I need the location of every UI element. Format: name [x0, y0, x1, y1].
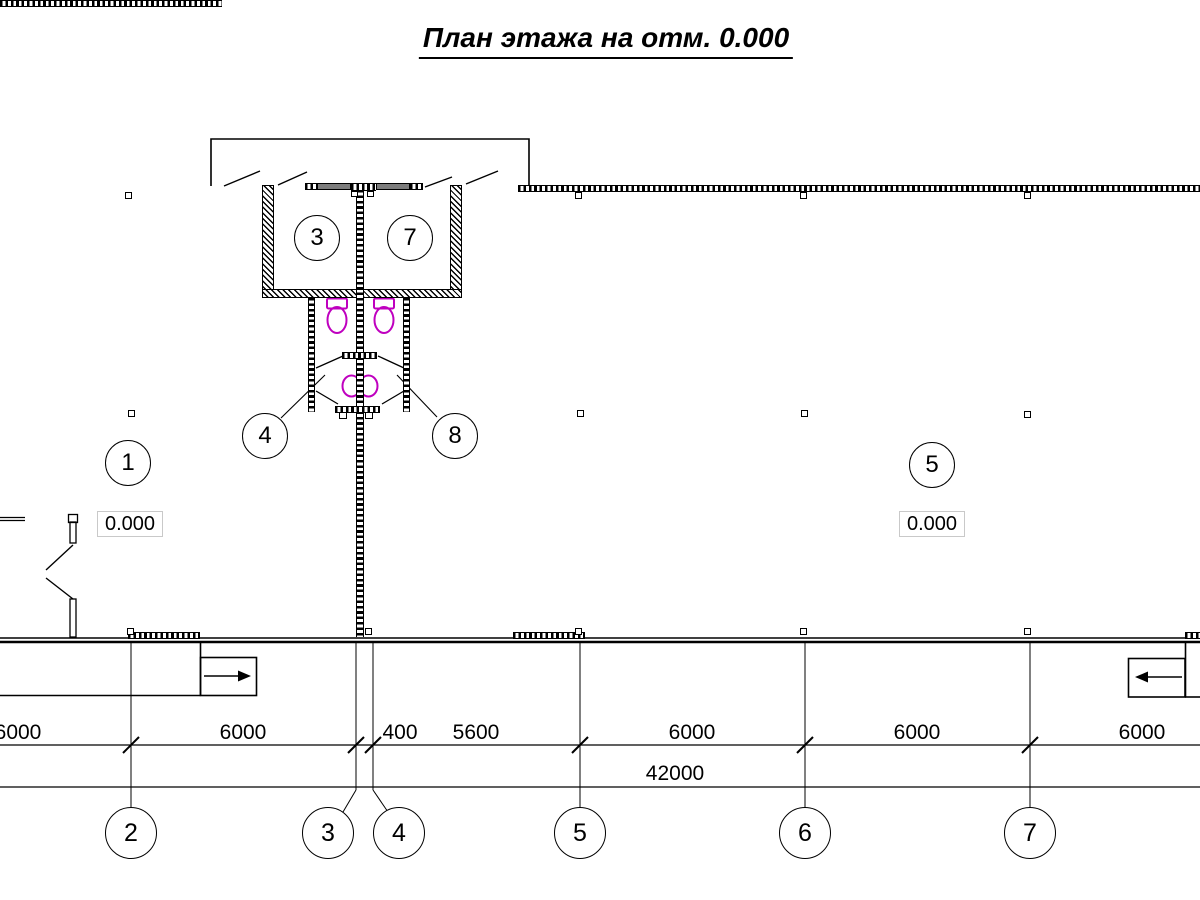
dim-text-total: 42000 — [646, 762, 704, 786]
wc-top-wall-cap — [305, 183, 317, 190]
column-tab — [125, 192, 132, 199]
dim-text-6000-d: 6000 — [894, 721, 941, 745]
column-tab — [365, 628, 372, 635]
column-tab — [800, 192, 807, 199]
column-marker — [577, 410, 584, 417]
door-leaf-line — [46, 578, 73, 599]
room-tag-4: 4 — [242, 413, 288, 459]
wc-top-wall-cap — [410, 183, 423, 190]
wc-top-partition — [376, 183, 410, 190]
top-wall-right-segment — [518, 185, 1200, 192]
door-leaf-line — [278, 172, 307, 185]
wc-left-wall — [262, 185, 274, 298]
dimension-lines — [0, 737, 1200, 787]
toilet-icon — [374, 295, 394, 334]
central-partition-wall — [356, 190, 364, 637]
column-tab — [365, 412, 373, 419]
door-leaf-line — [382, 391, 404, 404]
dim-text-6000-a: 6000 — [0, 721, 41, 745]
dim-text-6000-c: 6000 — [669, 721, 716, 745]
top-wall-left-segment — [0, 0, 222, 7]
column-tab — [1024, 628, 1031, 635]
room-tag-1: 1 — [105, 440, 151, 486]
dim-text-6000-e: 6000 — [1119, 721, 1166, 745]
leader-room-4 — [281, 375, 325, 418]
plan-linework — [0, 0, 1200, 900]
arrow-head-icon — [238, 671, 251, 682]
column-marker — [1024, 411, 1031, 418]
door-leaf-line — [224, 171, 260, 186]
door-leaf-line — [378, 356, 404, 368]
left-wall-segment — [70, 599, 76, 637]
axis-bubble-6: 6 — [779, 807, 831, 859]
room-tag-3: 3 — [294, 215, 340, 261]
dim-text-400: 400 — [382, 721, 417, 745]
lobby-partition-stub — [342, 352, 377, 359]
toilet-icon — [327, 295, 347, 334]
building-outline — [0, 139, 1200, 697]
arrow-head-icon — [1135, 672, 1148, 683]
door-leaf-line — [425, 177, 452, 187]
column-marker — [801, 410, 808, 417]
door-leaf-line — [316, 356, 343, 368]
bottom-wall-insulated-segment — [128, 632, 200, 639]
axis-bubble-7: 7 — [1004, 807, 1056, 859]
bottom-wall-insulated-segment — [1185, 632, 1200, 639]
elevation-label-left: 0.000 — [97, 511, 163, 537]
column-tab — [339, 412, 347, 419]
dim-text-5600: 5600 — [453, 721, 500, 745]
room-tag-5: 5 — [909, 442, 955, 488]
dim-text-6000-b: 6000 — [220, 721, 267, 745]
door-leaf-line — [46, 545, 73, 570]
axis-bubble-2: 2 — [105, 807, 157, 859]
axis-bubble-3: 3 — [302, 807, 354, 859]
wall-junction-square — [69, 515, 78, 523]
column-tab — [1024, 192, 1031, 199]
vestibule-outline — [211, 139, 529, 186]
column-tab — [367, 191, 374, 197]
room-tag-8: 8 — [432, 413, 478, 459]
left-wall-segment — [70, 522, 76, 543]
lobby-right-wall — [403, 298, 410, 412]
door-leaf-line — [466, 171, 498, 184]
column-marker — [128, 410, 135, 417]
axis-bubble-5: 5 — [554, 807, 606, 859]
axis-leader-4 — [373, 790, 388, 812]
room-tag-7: 7 — [387, 215, 433, 261]
floor-plan-canvas: План этажа на отм. 0.000 — [0, 0, 1200, 900]
wc-top-partition — [317, 183, 351, 190]
lobby-left-wall — [308, 298, 315, 412]
column-tab — [127, 628, 134, 635]
column-tab — [800, 628, 807, 635]
column-tab — [351, 191, 358, 197]
door-leaf-line — [316, 391, 338, 404]
column-tab — [575, 192, 582, 199]
axis-leader-3 — [343, 790, 356, 812]
elevation-label-right: 0.000 — [899, 511, 965, 537]
axis-bubble-4: 4 — [373, 807, 425, 859]
column-tab — [575, 628, 582, 635]
wc-right-wall — [450, 185, 462, 298]
